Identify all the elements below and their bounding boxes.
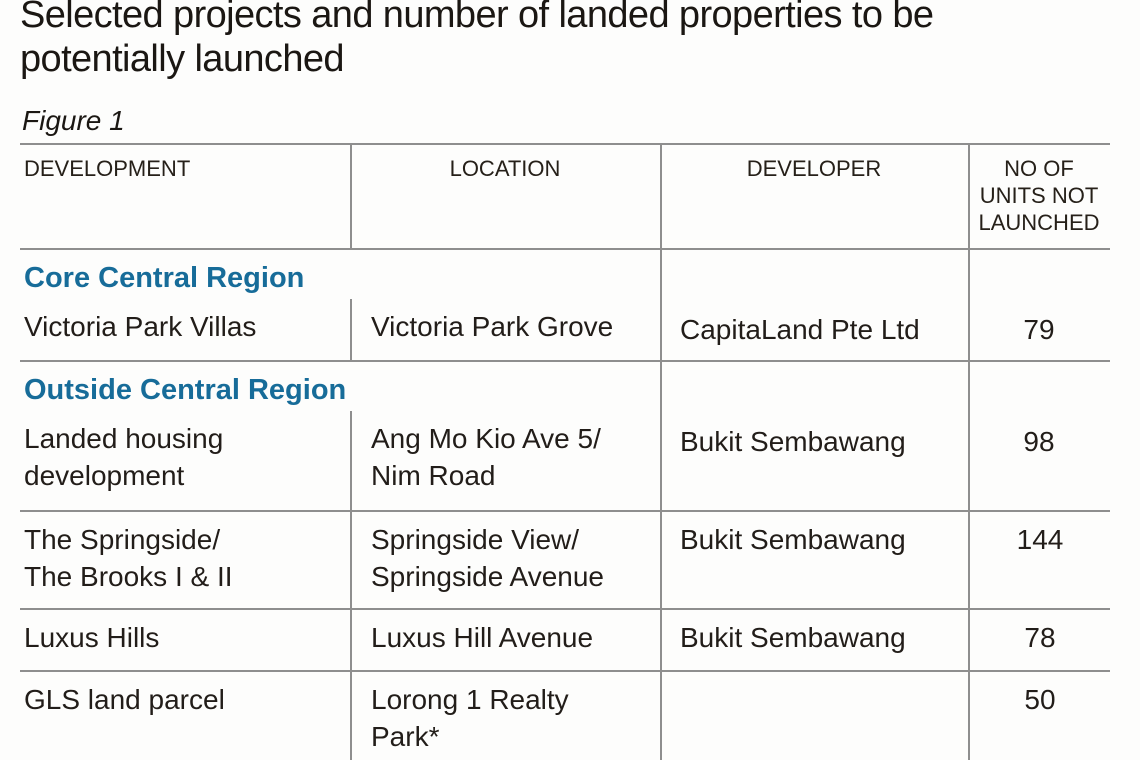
cell-developer: Bukit Sembawang bbox=[660, 610, 968, 670]
cell-location: Springside View/ Springside Avenue bbox=[350, 512, 660, 608]
cell-location: Ang Mo Kio Ave 5/ Nim Road bbox=[350, 411, 660, 510]
cell-developer bbox=[660, 672, 968, 760]
table-row-luxus-hills: Luxus Hills Luxus Hill Avenue Bukit Semb… bbox=[20, 610, 1110, 672]
news-figure-page: Selected projects and number of landed p… bbox=[0, 0, 1140, 760]
cell-units-not-launched: 79 bbox=[968, 250, 1110, 360]
cell-development: The Springside/ The Brooks I & II bbox=[20, 512, 350, 608]
section-heading-core-central-region: Core Central Region bbox=[20, 250, 660, 299]
cell-location: Victoria Park Grove bbox=[350, 299, 660, 360]
figure-label: Figure 1 bbox=[22, 105, 1140, 137]
cell-development: GLS land parcel bbox=[20, 672, 350, 760]
table-row-springside: The Springside/ The Brooks I & II Spring… bbox=[20, 512, 1110, 610]
projects-table: DEVELOPMENT LOCATION DEVELOPER NO OF UNI… bbox=[20, 143, 1110, 760]
cell-location: Luxus Hill Avenue bbox=[350, 610, 660, 670]
column-header-units-not-launched: NO OF UNITS NOT LAUNCHED bbox=[968, 145, 1110, 248]
section-heading-outside-central-region: Outside Central Region bbox=[20, 362, 660, 411]
column-header-developer: DEVELOPER bbox=[660, 145, 968, 248]
region-group-outside-central: Outside Central Region Landed housing de… bbox=[20, 362, 1110, 512]
table-row-gls-land-parcel: GLS land parcel Lorong 1 Realty Park* 50 bbox=[20, 672, 1110, 760]
cell-development: Landed housing development bbox=[20, 411, 350, 510]
cell-developer: CapitaLand Pte Ltd bbox=[660, 250, 968, 360]
region-group-core-central: Core Central Region Victoria Park Villas… bbox=[20, 250, 1110, 362]
cell-units-not-launched: 50 bbox=[968, 672, 1110, 760]
cell-units-not-launched: 144 bbox=[968, 512, 1110, 608]
cell-development: Victoria Park Villas bbox=[20, 299, 350, 360]
column-header-development: DEVELOPMENT bbox=[20, 145, 350, 248]
column-header-location: LOCATION bbox=[350, 145, 660, 248]
cell-development: Luxus Hills bbox=[20, 610, 350, 670]
cell-developer: Bukit Sembawang bbox=[660, 362, 968, 510]
table-header-row: DEVELOPMENT LOCATION DEVELOPER NO OF UNI… bbox=[20, 145, 1110, 250]
cell-units-not-launched: 98 bbox=[968, 362, 1110, 510]
cell-developer: Bukit Sembawang bbox=[660, 512, 968, 608]
cell-location: Lorong 1 Realty Park* bbox=[350, 672, 660, 760]
cell-units-not-launched: 78 bbox=[968, 610, 1110, 670]
figure-title: Selected projects and number of landed p… bbox=[20, 0, 1140, 81]
